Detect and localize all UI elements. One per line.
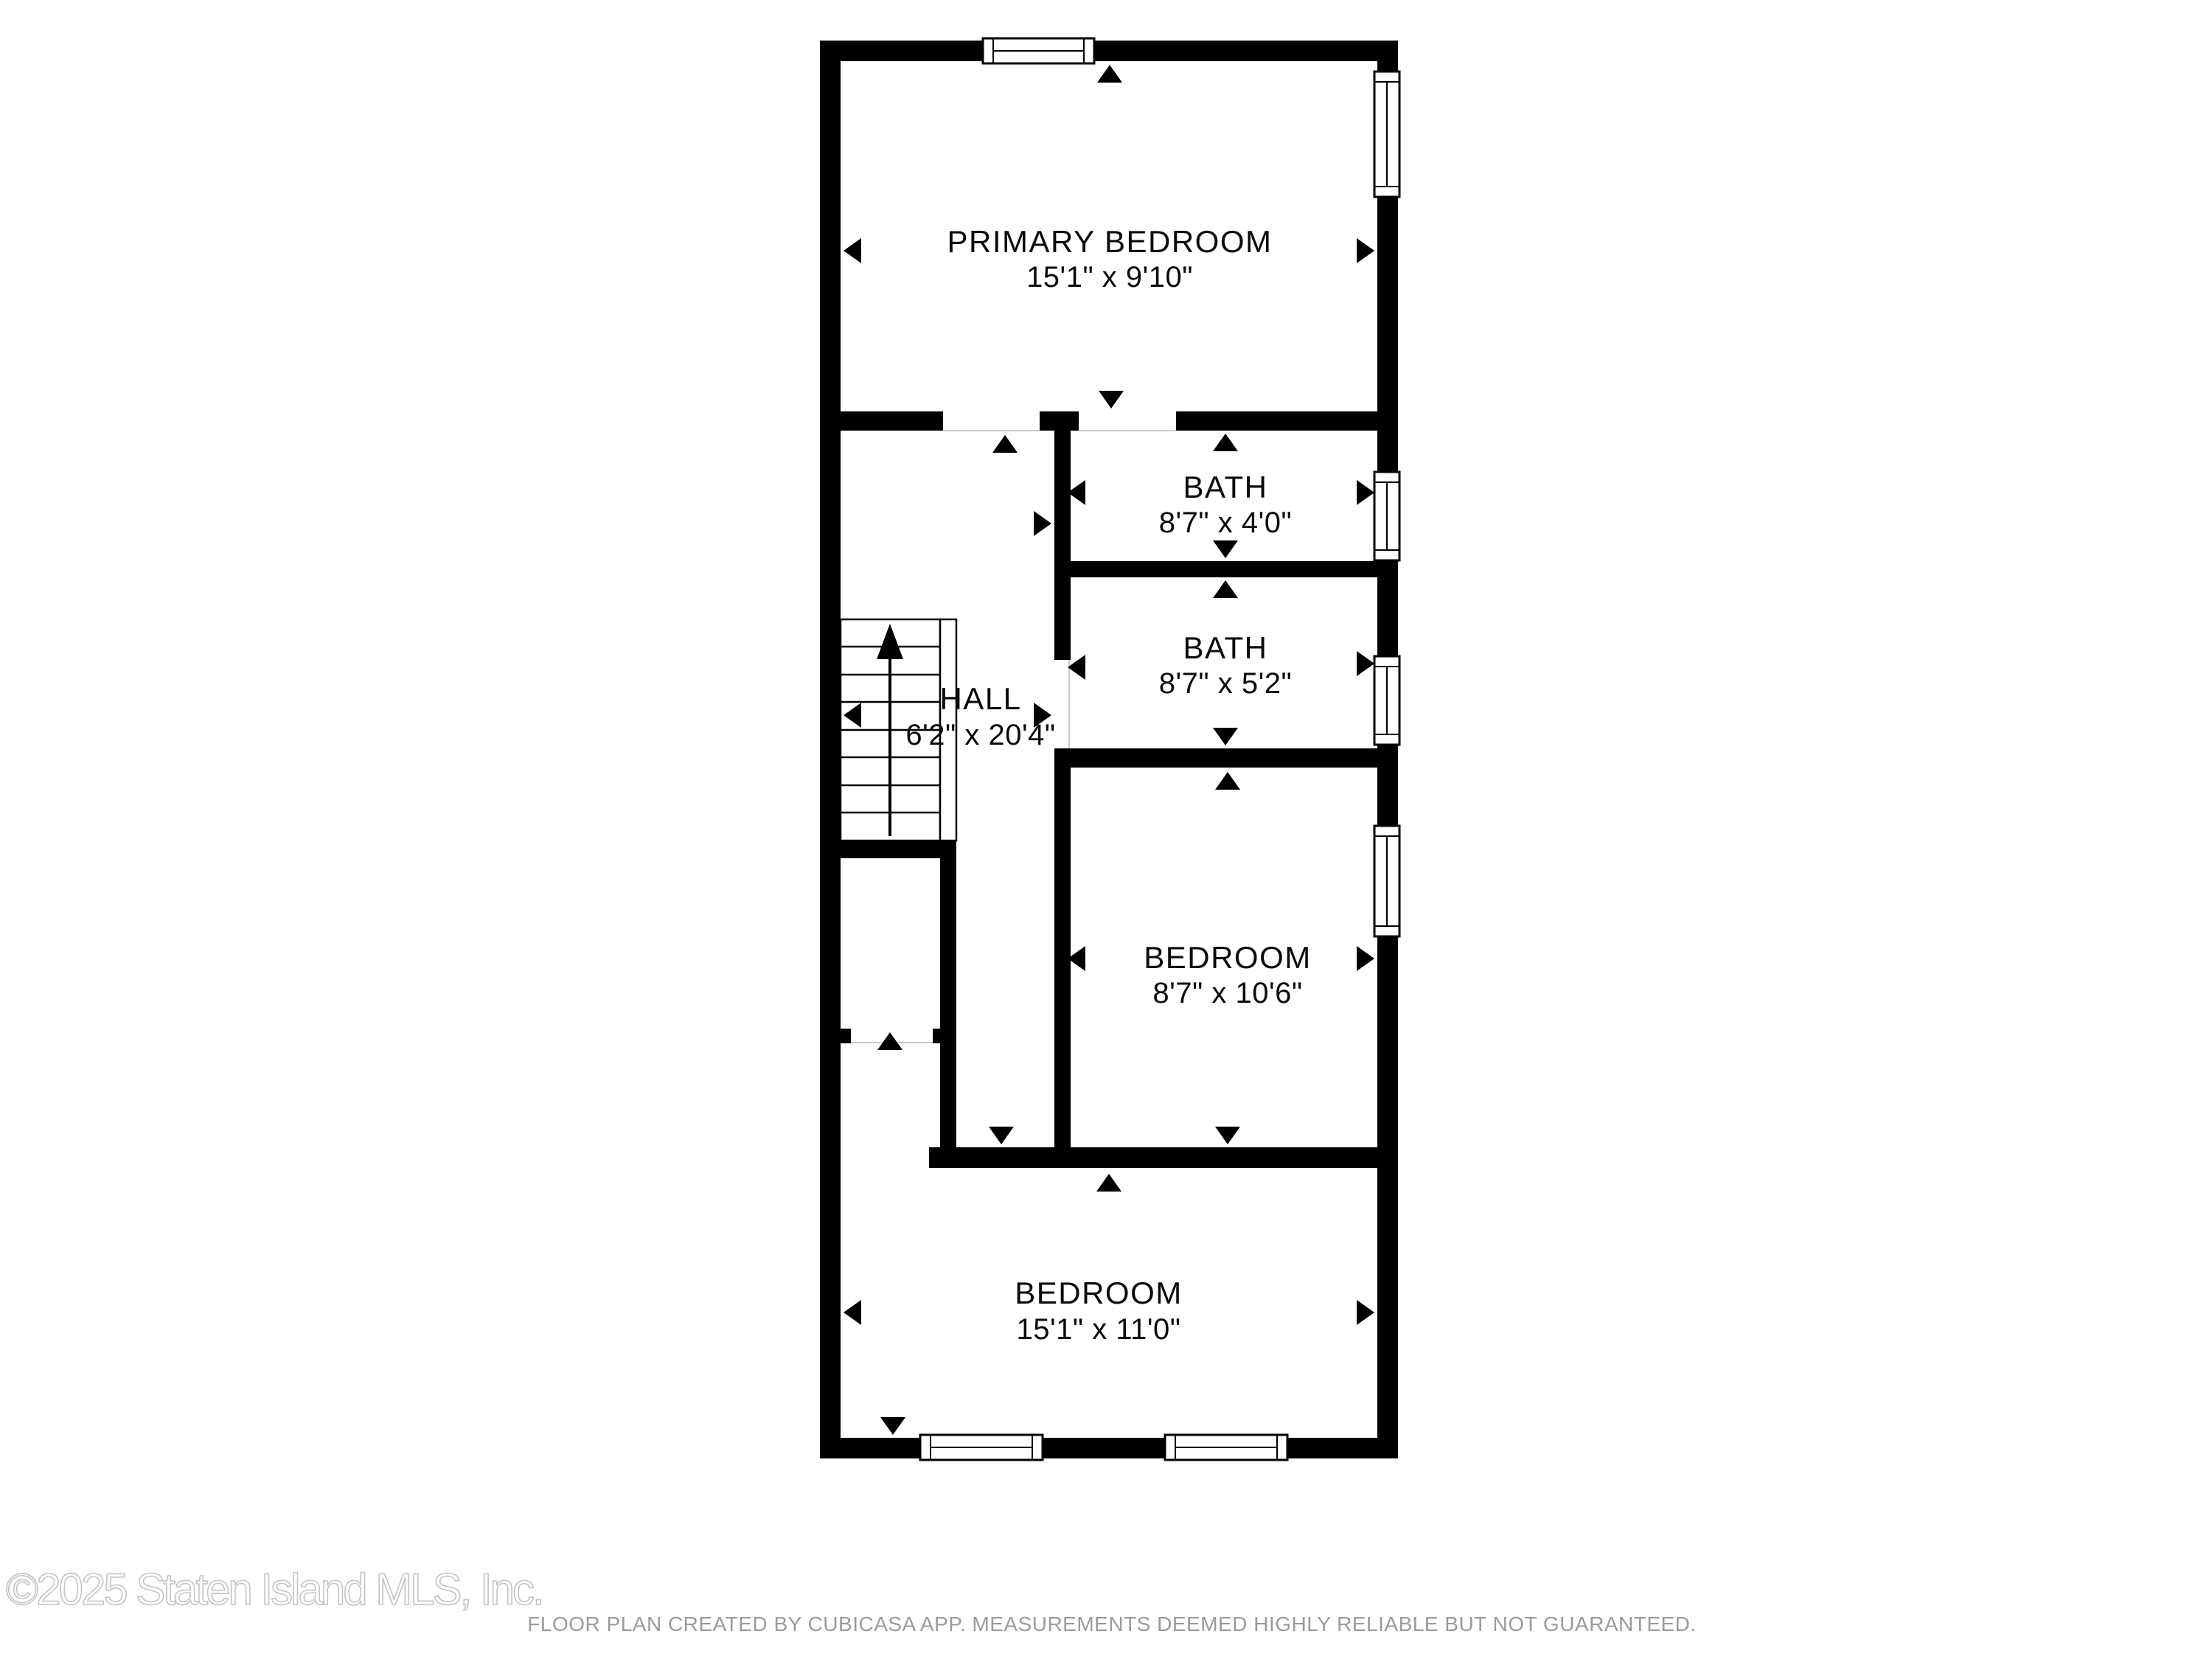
arrow-up-icon [1213, 580, 1238, 598]
arrow-down-icon [1215, 1127, 1240, 1144]
arrow-up-icon [877, 1032, 902, 1050]
mls-watermark: ©2025 Staten Island MLS, Inc. [6, 1565, 543, 1614]
arrow-up-icon [1097, 65, 1122, 83]
wall-stairs-south [841, 841, 956, 858]
arrow-up-icon [1215, 772, 1240, 790]
arrow-up-icon [1096, 1174, 1121, 1192]
room-dims-primary-bedroom: 15'1" x 9'10" [1026, 261, 1193, 293]
arrow-right-icon [1357, 651, 1374, 676]
wall-primary-south-c [1176, 411, 1377, 431]
floor-plan-page: PRIMARY BEDROOM 15'1" x 9'10" BATH 8'7" … [0, 0, 2212, 1659]
wall-top [820, 41, 1398, 61]
room-label-primary-bedroom: PRIMARY BEDROOM [947, 224, 1272, 259]
window-right-bath2 [1374, 656, 1399, 745]
arrow-down-icon [1099, 391, 1124, 408]
room-label-bath-1: BATH [1183, 470, 1268, 504]
arrow-left-icon [844, 1300, 861, 1325]
wall-hall-east-b [1054, 748, 1071, 1147]
wall-hall-east-a [1054, 411, 1071, 660]
arrow-left-icon [844, 238, 861, 263]
room-dims-bedroom-middle: 8'7" x 10'6" [1152, 977, 1302, 1009]
wall-closet-stub-left [841, 1029, 851, 1043]
room-label-bedroom-middle: BEDROOM [1144, 940, 1312, 975]
room-label-hall: HALL [939, 681, 1021, 716]
arrow-down-icon [989, 1127, 1014, 1144]
arrow-right-icon [1357, 480, 1374, 505]
room-label-bedroom-bottom: BEDROOM [1015, 1276, 1183, 1310]
arrow-down-icon [1213, 728, 1238, 745]
wall-right [1377, 41, 1398, 1458]
window-right-primary [1374, 72, 1399, 197]
wall-closet-east [940, 858, 956, 1147]
floor-plan: PRIMARY BEDROOM 15'1" x 9'10" BATH 8'7" … [0, 0, 2212, 1659]
window-top [983, 38, 1094, 63]
arrow-down-icon [880, 1417, 905, 1435]
wall-closet-stub-right [933, 1029, 956, 1043]
window-right-bath1 [1374, 472, 1399, 560]
wall-primary-south-a [841, 411, 943, 431]
wall-bottom [820, 1438, 1398, 1458]
room-label-bath-2: BATH [1183, 630, 1268, 665]
arrow-right-icon [1034, 511, 1051, 536]
window-right-bedroom [1374, 826, 1399, 936]
window-bottom-right [1165, 1435, 1287, 1460]
window-bottom-left [920, 1435, 1043, 1460]
room-dims-hall: 6'2" x 20'4" [905, 719, 1055, 751]
arrow-up-icon [992, 435, 1018, 453]
room-dims-bath-1: 8'7" x 4'0" [1159, 507, 1292, 539]
arrow-up-icon [1213, 434, 1238, 451]
disclaimer-text: FLOOR PLAN CREATED BY CUBICASA APP. MEAS… [527, 1613, 1696, 1635]
wall-bath-bedroom-divider [1071, 748, 1377, 768]
room-dims-bedroom-bottom: 15'1" x 11'0" [1017, 1313, 1181, 1346]
arrow-right-icon [1357, 1300, 1374, 1325]
wall-left [820, 41, 841, 1458]
wall-bath-divider [1071, 561, 1377, 577]
arrow-down-icon [1213, 540, 1238, 558]
room-dims-bath-2: 8'7" x 5'2" [1159, 667, 1292, 700]
wall-bedroom-divider [929, 1147, 1377, 1168]
arrow-right-icon [1357, 238, 1374, 263]
arrow-right-icon [1357, 946, 1374, 971]
